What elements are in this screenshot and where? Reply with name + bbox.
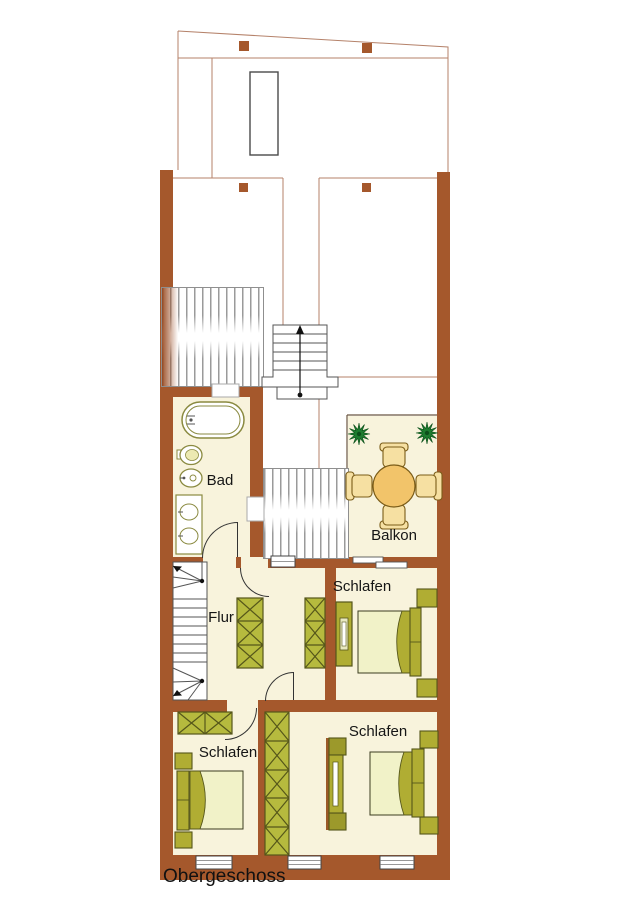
stairs-lower-icon (173, 562, 207, 700)
room-label-schlafen-rechts: Schlafen (338, 724, 418, 741)
door-leaf (237, 522, 238, 557)
bed-icon (358, 589, 437, 697)
bed-icon (175, 753, 243, 848)
room-label-balkon: Balkon (364, 528, 424, 545)
sideboard-icon (336, 602, 352, 666)
balcony-door-icon (353, 557, 407, 568)
floor-title: Obergeschoss (163, 866, 286, 888)
room-label-schlafen-oben: Schlafen (322, 579, 402, 596)
stairs-upper-icon (262, 325, 338, 399)
door-leaf (293, 672, 294, 700)
room-label-flur: Flur (195, 610, 247, 627)
double-sink-icon (176, 495, 202, 554)
round-table-icon (373, 465, 415, 507)
toilet-icon (177, 446, 202, 465)
bathtub-icon (182, 402, 244, 438)
room-label-bad: Bad (196, 473, 244, 490)
plant-icon (416, 422, 438, 444)
plant-icon (348, 423, 370, 445)
plan-drawing (0, 0, 636, 900)
room-label-schlafen-links: Schlafen (188, 745, 268, 762)
bed-icon (370, 731, 438, 834)
sideboard-icon (326, 738, 346, 830)
chimney-icon (250, 72, 278, 155)
floor-plan: Bad Balkon Schlafen Flur Schlafen Schlaf… (0, 0, 636, 900)
